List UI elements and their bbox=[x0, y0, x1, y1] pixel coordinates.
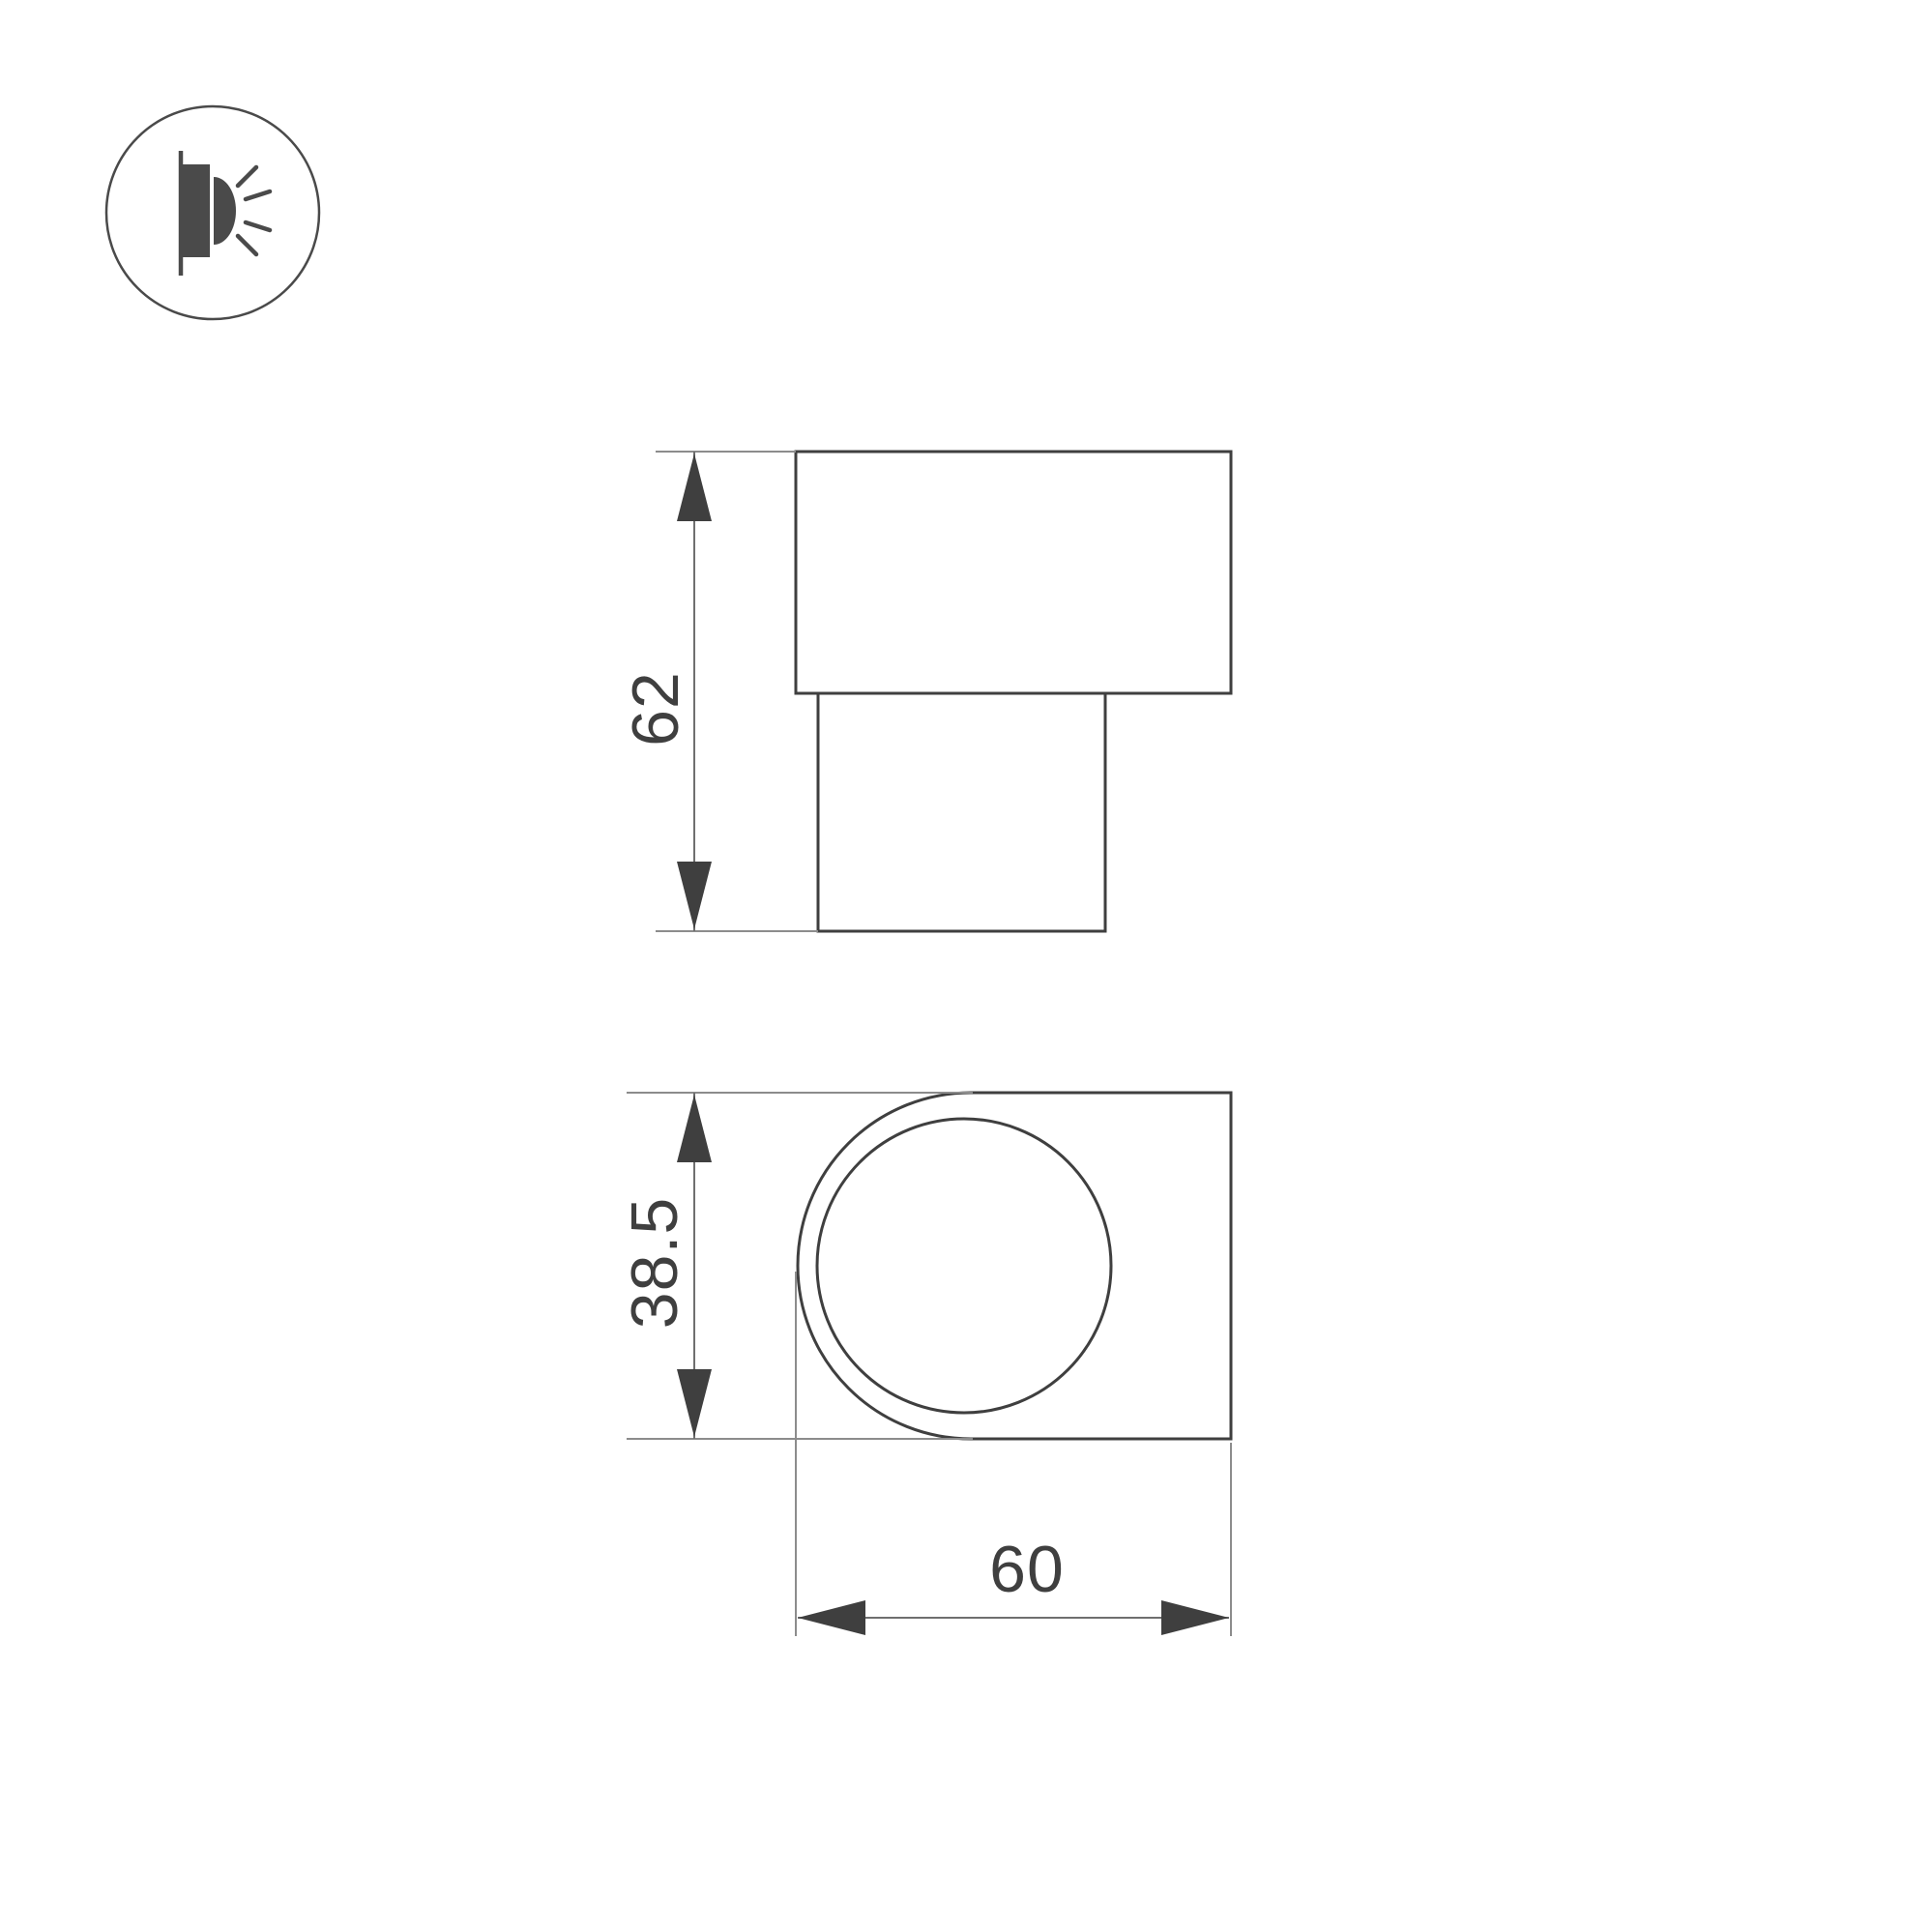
drawing-canvas: 62 38.5 bbox=[0, 0, 1932, 1932]
arrowhead-up-icon bbox=[677, 1095, 712, 1162]
dimension-label-height: 62 bbox=[619, 671, 692, 746]
light-rays-icon bbox=[238, 167, 270, 254]
dimension-label-width: 60 bbox=[989, 1533, 1065, 1606]
arrowhead-down-icon bbox=[677, 862, 712, 929]
side-view-body-outline bbox=[818, 693, 1105, 931]
front-view-outline bbox=[798, 1093, 1231, 1439]
product-type-badge bbox=[106, 106, 319, 319]
dimension-height-62: 62 bbox=[619, 452, 818, 931]
light-ray bbox=[238, 236, 256, 254]
arrowhead-down-icon bbox=[677, 1369, 712, 1437]
wall-light-icon bbox=[181, 151, 270, 276]
side-view: 62 bbox=[619, 452, 1231, 931]
lamp-body bbox=[183, 164, 210, 257]
arrowhead-left-icon bbox=[798, 1600, 865, 1635]
front-view: 38.5 60 bbox=[618, 1093, 1231, 1636]
lamp-lens bbox=[214, 177, 236, 245]
dimension-label-height: 38.5 bbox=[618, 1197, 691, 1329]
light-ray bbox=[238, 167, 256, 186]
light-ray bbox=[246, 222, 270, 230]
light-ray bbox=[246, 191, 270, 199]
dimension-drawing: 62 38.5 bbox=[0, 0, 1932, 1932]
arrowhead-right-icon bbox=[1161, 1600, 1229, 1635]
arrowhead-up-icon bbox=[677, 454, 712, 521]
badge-circle bbox=[106, 106, 319, 319]
side-view-head-outline bbox=[796, 452, 1231, 693]
